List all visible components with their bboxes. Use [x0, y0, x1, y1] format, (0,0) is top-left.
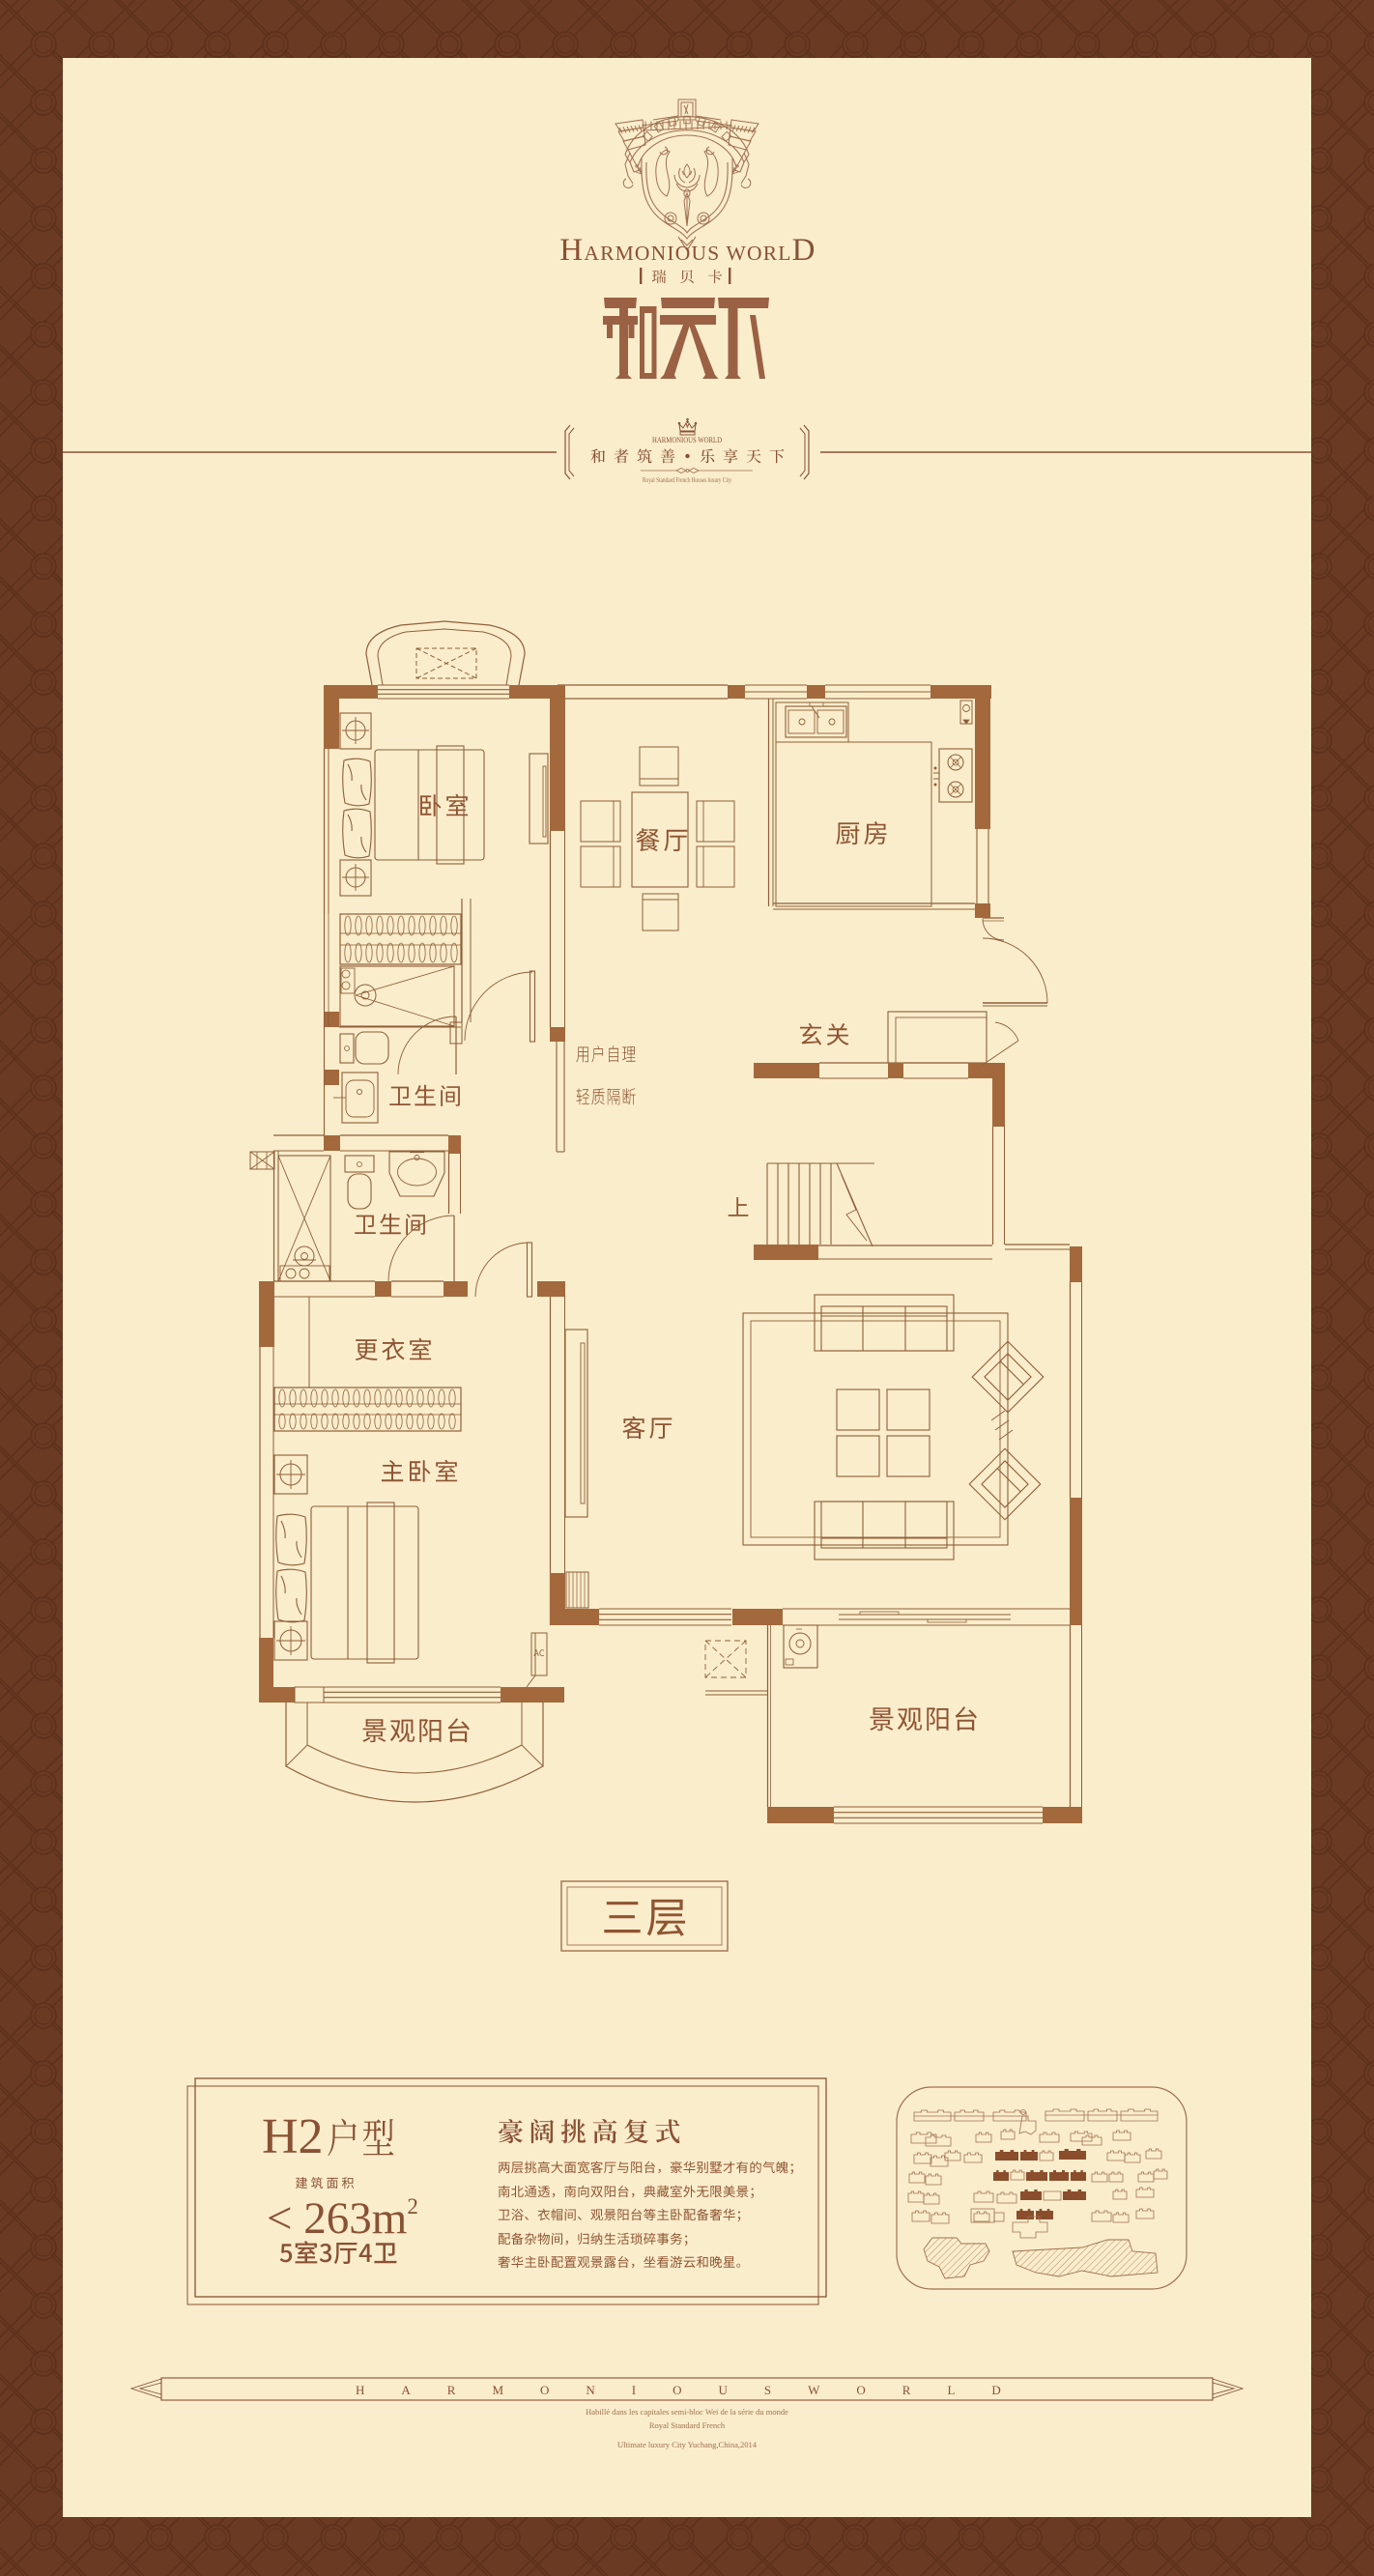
- svg-text:Royal Standard French Houses l: Royal Standard French Houses luxury City: [643, 476, 731, 484]
- svg-text:HARMONIOUSWORLD: HARMONIOUSWORLD: [356, 2383, 1038, 2397]
- svg-text:Habillé dans les capitales sem: Habillé dans les capitales semi-bloc Wei…: [586, 2407, 788, 2417]
- svg-text:Royal Standard French: Royal Standard French: [649, 2420, 726, 2430]
- svg-text:< 263m2: < 263m2: [267, 2193, 418, 2244]
- svg-text:H2: H2: [262, 2109, 324, 2164]
- svg-text:HARMONIOUS WORLD: HARMONIOUS WORLD: [652, 436, 722, 444]
- svg-text:Ultimate luxury City Yuchang,C: Ultimate luxury City Yuchang,China,2014: [617, 2440, 758, 2449]
